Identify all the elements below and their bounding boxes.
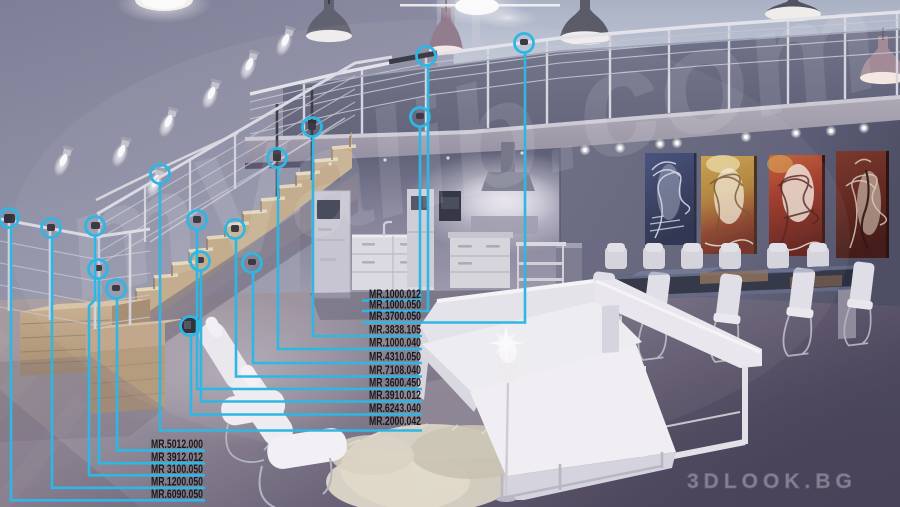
svg-text:MR.6243.040: MR.6243.040: [369, 403, 421, 415]
svg-text:MR.1000.040: MR.1000.040: [369, 338, 421, 350]
svg-text:MR.6090.050: MR.6090.050: [151, 489, 203, 501]
svg-text:MR.1000.050: MR.1000.050: [369, 300, 421, 312]
svg-text:MR 3912.012: MR 3912.012: [151, 452, 203, 464]
svg-text:MR 3600.450: MR 3600.450: [369, 378, 421, 390]
svg-text:MR.1200.050: MR.1200.050: [151, 477, 203, 489]
svg-text:MR.4310.050: MR.4310.050: [369, 352, 421, 364]
svg-text:MR.7108.040: MR.7108.040: [369, 365, 421, 377]
svg-text:MR.3838.105: MR.3838.105: [369, 325, 421, 337]
svg-text:MR.3910.012: MR.3910.012: [369, 390, 421, 402]
svg-text:MR 3100.050: MR 3100.050: [151, 464, 203, 476]
svg-text:MR.2000.042: MR.2000.042: [369, 416, 421, 428]
svg-text:MR.3700.050: MR.3700.050: [369, 311, 421, 323]
svg-text:MR.5012.000: MR.5012.000: [151, 439, 203, 451]
